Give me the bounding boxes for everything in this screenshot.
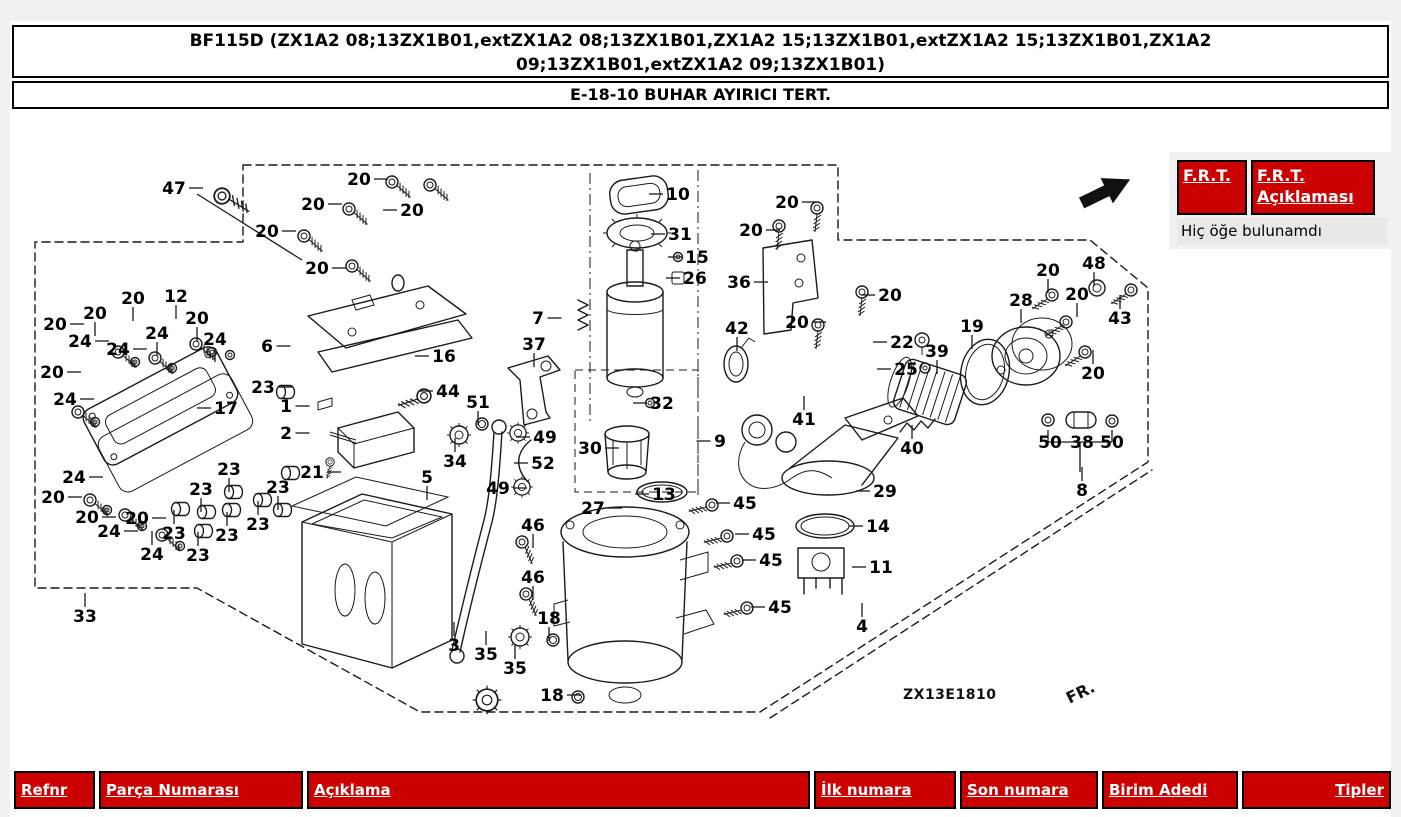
callout-number[interactable]: 44 [436,382,460,402]
callout-number[interactable]: 14 [866,517,890,537]
column-header-tipler[interactable]: Tipler [1242,771,1391,809]
callout-number[interactable]: 45 [759,551,783,571]
fr-label: FR. [1063,677,1098,707]
callout-number[interactable]: 12 [164,287,188,307]
diagram-artwork [70,174,1140,715]
column-header-son-numara[interactable]: Son numara [960,771,1098,809]
callout-number[interactable]: 20 [785,313,809,333]
callout-number[interactable]: 24 [68,332,92,352]
callout-number[interactable]: 21 [300,463,324,483]
callout-number[interactable]: 40 [900,439,924,459]
callout-number[interactable]: 50 [1100,433,1124,453]
callout-number[interactable]: 24 [106,340,130,360]
figure-code: ZX13E1810 [903,687,996,703]
callout-number[interactable]: 24 [97,522,121,542]
callout-number[interactable]: 52 [531,454,555,474]
callout-number[interactable]: 38 [1070,433,1094,453]
callout-number[interactable]: 20 [1065,285,1089,305]
parts-diagram: FR. ZX13E1810 47202020202012202020242424… [0,0,1401,817]
callout-number[interactable]: 2 [280,424,292,444]
callout-number[interactable]: 24 [53,390,77,410]
catalog-title-box: BF115D (ZX1A2 08;13ZX1B01,extZX1A2 08;13… [12,25,1389,78]
callout-number[interactable]: 35 [474,645,498,665]
callout-number[interactable]: 30 [578,439,602,459]
callout-number[interactable]: 23 [246,515,270,535]
callout-number[interactable]: 23 [217,460,241,480]
callout-number[interactable]: 46 [521,568,545,588]
callout-number[interactable]: 5 [421,468,433,488]
callout-number[interactable]: 23 [215,526,239,546]
column-header-refnr[interactable]: Refnr [14,771,95,809]
callout-number[interactable]: 20 [1036,261,1060,281]
callout-number[interactable]: 28 [1009,291,1033,311]
callout-number[interactable]: 45 [733,494,757,514]
callout-number[interactable]: 20 [41,488,65,508]
callout-number[interactable]: 20 [1081,364,1105,384]
callout-number[interactable]: 27 [581,499,605,519]
callout-number[interactable]: 32 [650,394,674,414]
callout-number[interactable]: 24 [203,330,227,350]
callout-number[interactable]: 20 [739,221,763,241]
callout-number[interactable]: 51 [466,393,490,413]
callout-number[interactable]: 24 [140,545,164,565]
frt-empty-message: Hiç öğe bulunamdı [1177,218,1387,245]
callout-number[interactable]: 20 [255,222,279,242]
callout-number[interactable]: 43 [1108,309,1132,329]
callout-number[interactable]: 24 [62,468,86,488]
callout-number[interactable]: 45 [768,598,792,618]
callout-number[interactable]: 17 [214,399,238,419]
callout-number[interactable]: 7 [532,309,544,329]
callout-number[interactable]: 46 [521,516,545,536]
callout-number[interactable]: 33 [73,607,97,627]
callout-number[interactable]: 19 [960,317,984,337]
callout-number[interactable]: 4 [856,617,868,637]
callout-number[interactable]: 36 [727,273,751,293]
callout-number[interactable]: 50 [1038,433,1062,453]
callout-number[interactable]: 22 [890,333,914,353]
frt-panel: F.R.T. F.R.T. Açıklaması Hiç öğe bulunam… [1169,152,1393,249]
callout-number[interactable]: 20 [775,193,799,213]
column-header-ilk-numara[interactable]: İlk numara [814,771,956,809]
callout-number[interactable]: 23 [162,524,186,544]
catalog-title-line1: BF115D (ZX1A2 08;13ZX1B01,extZX1A2 08;13… [14,29,1387,53]
callout-number[interactable]: 24 [145,324,169,344]
callout-number[interactable]: 20 [878,286,902,306]
callout-number[interactable]: 23 [251,378,275,398]
callout-number[interactable]: 31 [668,225,692,245]
callout-number[interactable]: 20 [40,363,64,383]
callout-number[interactable]: 45 [752,525,776,545]
callout-number[interactable]: 20 [400,201,424,221]
callout-number[interactable]: 10 [666,185,690,205]
callout-number[interactable]: 1 [280,397,292,417]
callout-number[interactable]: 20 [83,304,107,324]
callout-number[interactable]: 47 [162,179,186,199]
callout-number[interactable]: 26 [683,269,707,289]
callout-number[interactable]: 20 [347,170,371,190]
callout-number[interactable]: 29 [873,482,897,502]
callout-number[interactable]: 15 [685,248,709,268]
frt-button[interactable]: F.R.T. [1177,160,1247,215]
column-header-aciklama[interactable]: Açıklama [307,771,810,809]
callout-number[interactable]: 9 [714,432,726,452]
column-header-parca-numarasi[interactable]: Parça Numarası [99,771,303,809]
callout-number[interactable]: 39 [925,342,949,362]
callout-number[interactable]: 49 [486,479,510,499]
callout-number[interactable]: 20 [185,309,209,329]
callout-number[interactable]: 18 [537,609,561,629]
callout-number[interactable]: 20 [43,315,67,335]
frt-description-button[interactable]: F.R.T. Açıklaması [1251,160,1375,215]
callout-number[interactable]: 20 [75,508,99,528]
callout-number[interactable]: 20 [121,289,145,309]
callout-number[interactable]: 3 [448,636,460,656]
callout-number[interactable]: 23 [266,478,290,498]
callout-number[interactable]: 42 [725,319,749,339]
callout-number[interactable]: 16 [432,347,456,367]
callout-number[interactable]: 20 [301,195,325,215]
callout-number[interactable]: 20 [125,509,149,529]
callout-number[interactable]: 49 [533,428,557,448]
callout-number[interactable]: 6 [261,337,273,357]
callout-number[interactable]: 48 [1082,254,1106,274]
callout-number[interactable]: 41 [792,410,816,430]
callout-number[interactable]: 34 [443,452,467,472]
callout-number[interactable]: 11 [869,558,893,578]
callout-number[interactable]: 35 [503,659,527,679]
catalog-title-line2: 09;13ZX1B01,extZX1A2 09;13ZX1B01) [14,53,1387,77]
parts-catalog-page: FR. ZX13E1810 47202020202012202020242424… [0,0,1401,817]
column-header-birim-adedi[interactable]: Birim Adedi [1102,771,1238,809]
callout-layer: 4720202020201220202024242420242024616172… [40,170,1132,706]
callout-number[interactable]: 8 [1076,481,1088,501]
callout-number[interactable]: 23 [186,546,210,566]
callout-number[interactable]: 23 [189,480,213,500]
callout-number[interactable]: 37 [522,335,546,355]
callout-number[interactable]: 13 [652,485,676,505]
parts-table-header: Refnr Parça Numarası Açıklama İlk numara… [0,771,1401,811]
callout-number[interactable]: 25 [894,360,918,380]
callout-number[interactable]: 20 [305,259,329,279]
callout-number[interactable]: 18 [540,686,564,706]
section-title-box: E-18-10 BUHAR AYIRICI TERT. [12,81,1389,109]
